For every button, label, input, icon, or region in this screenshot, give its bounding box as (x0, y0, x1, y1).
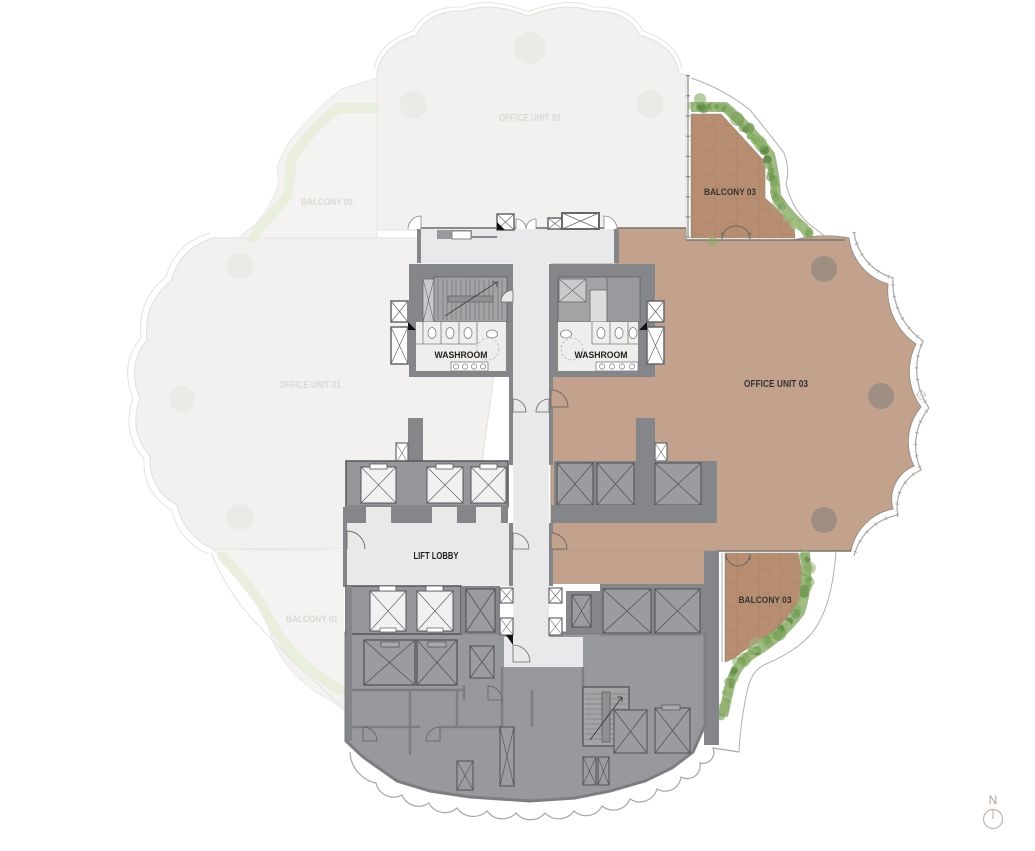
svg-text:LIFT LOBBY: LIFT LOBBY (414, 551, 459, 562)
svg-text:N: N (989, 793, 998, 807)
svg-text:BALCONY 03: BALCONY 03 (739, 595, 792, 606)
svg-text:BALCONY 01: BALCONY 01 (286, 614, 338, 624)
svg-text:WASHROOM: WASHROOM (435, 350, 488, 361)
svg-text:WASHROOM: WASHROOM (575, 350, 628, 361)
svg-text:OFFICE UNIT 02: OFFICE UNIT 02 (499, 113, 561, 124)
svg-text:OFFICE UNIT 01: OFFICE UNIT 01 (279, 380, 341, 391)
svg-text:BALCONY 03: BALCONY 03 (704, 187, 756, 198)
svg-text:BALCONY 02: BALCONY 02 (301, 197, 353, 207)
svg-text:OFFICE UNIT 03: OFFICE UNIT 03 (744, 379, 808, 390)
